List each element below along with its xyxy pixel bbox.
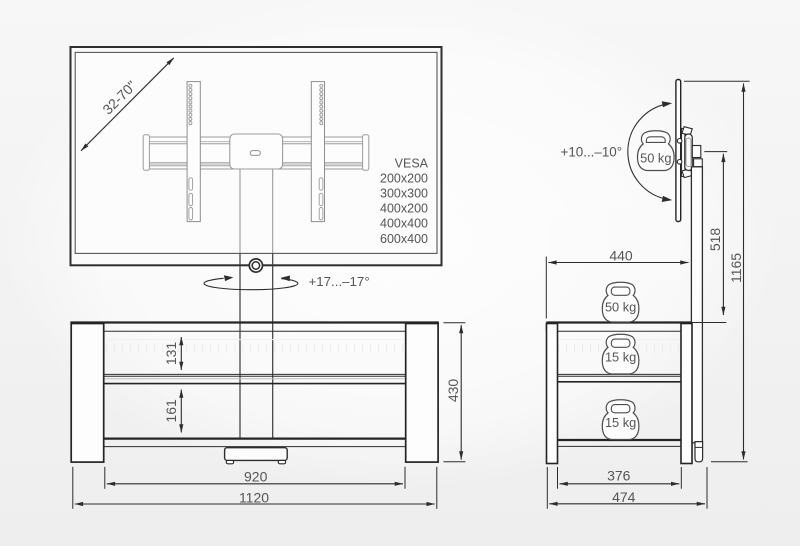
svg-text:131: 131: [163, 342, 179, 366]
svg-text:300x300: 300x300: [380, 186, 428, 200]
svg-text:50 kg: 50 kg: [605, 300, 636, 315]
svg-text:920: 920: [244, 468, 268, 484]
svg-text:161: 161: [163, 399, 179, 423]
svg-text:+17...–17°: +17...–17°: [309, 274, 370, 289]
svg-text:600x400: 600x400: [380, 232, 428, 246]
svg-text:VESA: VESA: [395, 157, 429, 171]
svg-text:518: 518: [707, 228, 723, 252]
svg-text:400x400: 400x400: [380, 217, 428, 231]
svg-text:15 kg: 15 kg: [605, 350, 636, 365]
svg-text:1165: 1165: [728, 253, 744, 283]
svg-text:440: 440: [609, 247, 633, 263]
svg-text:1120: 1120: [239, 489, 269, 505]
svg-text:50 kg: 50 kg: [640, 151, 671, 166]
svg-text:+10...–10°: +10...–10°: [561, 145, 623, 160]
svg-text:15 kg: 15 kg: [605, 415, 636, 430]
svg-text:430: 430: [445, 379, 461, 403]
svg-text:400x200: 400x200: [380, 202, 428, 216]
svg-text:376: 376: [607, 467, 631, 483]
svg-text:200x200: 200x200: [380, 171, 428, 185]
svg-text:474: 474: [612, 489, 636, 505]
